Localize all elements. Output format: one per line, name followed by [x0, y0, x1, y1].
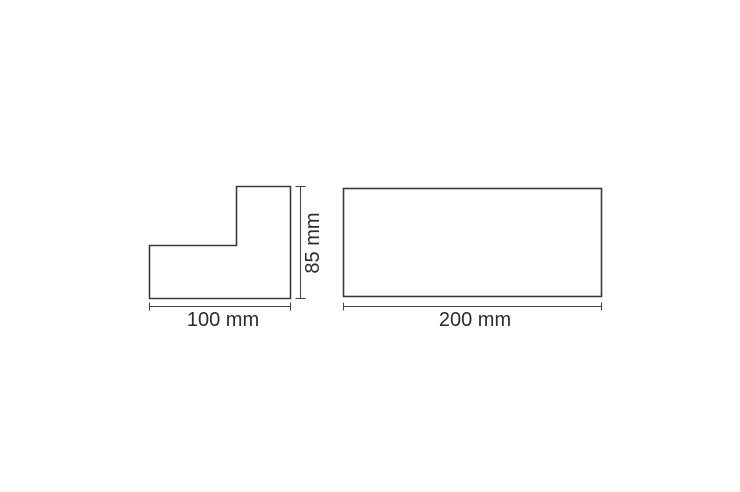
technical-drawing: 85 mm 100 mm 200 mm — [0, 0, 740, 492]
rect-width-dimension-label: 200 mm — [439, 309, 511, 331]
l-profile-shape — [150, 187, 291, 299]
rect-profile-shape — [344, 189, 602, 297]
page-root: 85 mm 100 mm 200 mm — [0, 0, 740, 492]
l-width-dimension-group: 100 mm — [150, 303, 291, 332]
height-dimension-label: 85 mm — [302, 212, 324, 273]
rect-width-dimension-group: 200 mm — [344, 303, 602, 332]
height-dimension-group: 85 mm — [296, 187, 325, 299]
l-width-dimension-label: 100 mm — [187, 309, 259, 331]
